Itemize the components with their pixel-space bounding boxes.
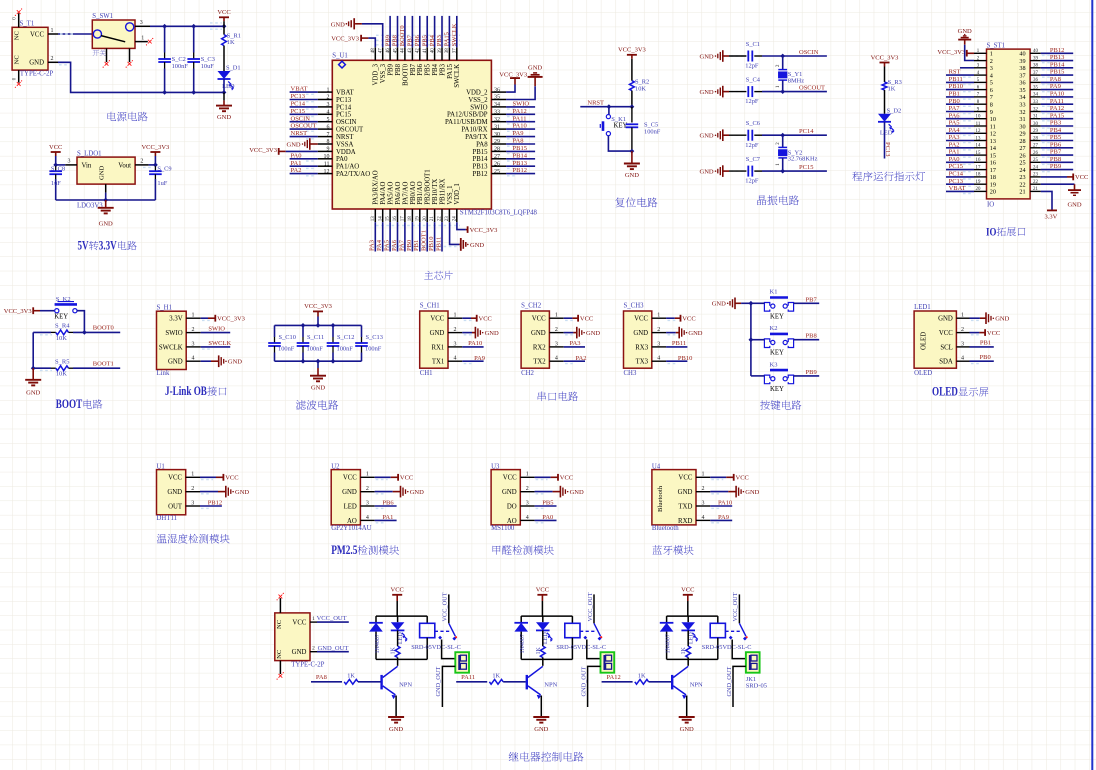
svg-text:PA12: PA12 bbox=[513, 108, 527, 115]
svg-text:PA10: PA10 bbox=[1050, 91, 1064, 98]
svg-text:GND: GND bbox=[26, 389, 40, 396]
svg-text:SWCLK: SWCLK bbox=[454, 64, 461, 88]
svg-text:MS1100: MS1100 bbox=[491, 525, 515, 532]
svg-text:38: 38 bbox=[1019, 65, 1025, 72]
svg-text:TXD: TXD bbox=[678, 503, 692, 510]
svg-text:16: 16 bbox=[990, 160, 996, 167]
svg-text:Bluetooth: Bluetooth bbox=[652, 525, 679, 532]
svg-text:PA6/AO: PA6/AO bbox=[395, 182, 402, 205]
svg-text:S_ST1: S_ST1 bbox=[987, 42, 1006, 49]
svg-text:VCC: VCC bbox=[681, 587, 694, 594]
svg-text:VCC_3V3: VCC_3V3 bbox=[217, 316, 245, 323]
svg-text:VSS_2: VSS_2 bbox=[468, 97, 488, 104]
svg-text:PA1: PA1 bbox=[382, 514, 393, 521]
svg-text:VCC: VCC bbox=[343, 475, 357, 482]
svg-text:PB9: PB9 bbox=[388, 63, 395, 75]
svg-text:29: 29 bbox=[1019, 131, 1025, 138]
svg-text:CH1: CH1 bbox=[420, 370, 433, 377]
svg-text:PC15: PC15 bbox=[799, 164, 813, 171]
svg-text:J-Link OB: J-Link OB bbox=[165, 384, 207, 398]
svg-text:24: 24 bbox=[1033, 165, 1038, 170]
svg-text:VCC: VCC bbox=[168, 475, 182, 482]
svg-text:43: 43 bbox=[408, 48, 413, 54]
svg-text:S_U1: S_U1 bbox=[332, 52, 348, 59]
svg-text:29: 29 bbox=[1033, 129, 1038, 134]
svg-text:PB13: PB13 bbox=[472, 164, 488, 171]
svg-text:PA8: PA8 bbox=[1050, 76, 1061, 83]
svg-text:SWCLK: SWCLK bbox=[159, 344, 183, 351]
svg-text:PC13: PC13 bbox=[884, 142, 891, 156]
svg-text:1: 1 bbox=[366, 472, 369, 478]
svg-text:CH2: CH2 bbox=[521, 370, 534, 377]
svg-text:3.3V: 3.3V bbox=[99, 238, 117, 252]
svg-text:47: 47 bbox=[379, 48, 384, 54]
svg-text:28: 28 bbox=[1033, 136, 1038, 141]
svg-text:GND: GND bbox=[745, 489, 759, 496]
svg-text:PA9: PA9 bbox=[718, 514, 729, 521]
svg-text:GND: GND bbox=[586, 330, 600, 337]
svg-text:1: 1 bbox=[51, 28, 54, 34]
svg-text:RX1: RX1 bbox=[431, 344, 444, 351]
svg-text:PA0: PA0 bbox=[542, 514, 553, 521]
svg-text:11: 11 bbox=[990, 123, 996, 130]
svg-text:GND: GND bbox=[688, 330, 702, 337]
svg-text:18: 18 bbox=[990, 174, 996, 181]
svg-text:12pF: 12pF bbox=[745, 98, 759, 105]
svg-text:PB1: PB1 bbox=[413, 240, 420, 251]
svg-text:PC14: PC14 bbox=[949, 171, 964, 178]
svg-text:PB10: PB10 bbox=[949, 83, 963, 90]
svg-text:RST: RST bbox=[949, 69, 961, 76]
svg-text:PB5: PB5 bbox=[425, 63, 432, 75]
svg-text:100nF: 100nF bbox=[278, 346, 295, 353]
svg-text:PB3: PB3 bbox=[436, 35, 443, 46]
svg-text:1: 1 bbox=[526, 472, 529, 478]
svg-text:2: 2 bbox=[702, 486, 705, 492]
svg-text:K2: K2 bbox=[770, 325, 778, 332]
svg-text:VCC: VCC bbox=[536, 587, 549, 594]
svg-text:U1: U1 bbox=[157, 463, 165, 470]
svg-text:GND: GND bbox=[228, 359, 242, 366]
svg-text:35: 35 bbox=[1019, 87, 1025, 94]
svg-text:PB3: PB3 bbox=[439, 63, 446, 75]
svg-text:KEY: KEY bbox=[770, 313, 784, 320]
svg-text:PB7: PB7 bbox=[1050, 149, 1062, 156]
svg-text:PA8: PA8 bbox=[476, 141, 488, 148]
svg-text:PA12/USB/DP: PA12/USB/DP bbox=[447, 112, 488, 119]
svg-text:3: 3 bbox=[366, 500, 369, 506]
svg-text:VCC: VCC bbox=[225, 475, 238, 482]
svg-text:3: 3 bbox=[454, 341, 457, 347]
svg-text:1: 1 bbox=[702, 472, 705, 478]
svg-text:NC: NC bbox=[14, 31, 21, 41]
svg-text:S_D2: S_D2 bbox=[887, 107, 902, 114]
svg-text:PA2: PA2 bbox=[949, 141, 960, 148]
svg-text:SRD-05VDC-SL-C: SRD-05VDC-SL-C bbox=[411, 644, 461, 651]
svg-text:PB9: PB9 bbox=[806, 369, 817, 376]
svg-text:S_C12: S_C12 bbox=[337, 334, 354, 341]
svg-text:1K: 1K bbox=[347, 673, 355, 680]
svg-text:VCC: VCC bbox=[503, 475, 517, 482]
svg-text:PB6: PB6 bbox=[414, 34, 421, 46]
svg-text:BOOT1: BOOT1 bbox=[93, 360, 114, 367]
svg-text:16: 16 bbox=[976, 158, 981, 163]
svg-text:PA0: PA0 bbox=[949, 156, 960, 163]
svg-text:PA3: PA3 bbox=[949, 134, 960, 141]
svg-text:PA11: PA11 bbox=[461, 674, 475, 681]
svg-text:20: 20 bbox=[423, 216, 428, 222]
svg-text:U3: U3 bbox=[491, 463, 500, 470]
svg-text:PC13: PC13 bbox=[949, 178, 963, 185]
svg-text:37: 37 bbox=[1033, 71, 1038, 76]
svg-text:PC13: PC13 bbox=[291, 93, 305, 100]
svg-text:SRD-05: SRD-05 bbox=[746, 682, 767, 689]
svg-text:VCC_3V3: VCC_3V3 bbox=[937, 49, 965, 56]
svg-text:PB0: PB0 bbox=[949, 98, 960, 105]
svg-text:Bluetooth: Bluetooth bbox=[657, 485, 664, 512]
svg-text:2: 2 bbox=[454, 327, 457, 333]
svg-text:1uF: 1uF bbox=[51, 180, 61, 187]
svg-text:OSCIN: OSCIN bbox=[291, 115, 311, 122]
svg-text:S_C9: S_C9 bbox=[157, 165, 171, 172]
svg-text:SWIO: SWIO bbox=[470, 104, 487, 111]
svg-text:3: 3 bbox=[192, 341, 195, 347]
svg-text:GND: GND bbox=[168, 359, 183, 366]
svg-text:PA5/AO: PA5/AO bbox=[388, 182, 395, 205]
svg-text:VCC_OUT: VCC_OUT bbox=[442, 592, 449, 621]
svg-text:24: 24 bbox=[1019, 167, 1025, 174]
svg-text:2: 2 bbox=[51, 56, 54, 62]
svg-text:SWIO: SWIO bbox=[165, 330, 182, 337]
svg-text:PA5: PA5 bbox=[384, 240, 391, 251]
svg-text:S_C4: S_C4 bbox=[746, 77, 761, 84]
svg-text:NRST: NRST bbox=[587, 100, 604, 107]
svg-text:VBAT: VBAT bbox=[291, 86, 308, 93]
svg-text:VDDA: VDDA bbox=[336, 149, 356, 156]
svg-text:4: 4 bbox=[366, 515, 369, 521]
svg-text:36: 36 bbox=[1033, 78, 1038, 83]
svg-text:LED: LED bbox=[543, 632, 549, 644]
svg-text:PB12: PB12 bbox=[1050, 47, 1064, 54]
svg-text:BOOT1: BOOT1 bbox=[421, 230, 428, 251]
svg-text:13: 13 bbox=[371, 216, 376, 222]
svg-text:PM2.5: PM2.5 bbox=[331, 543, 357, 557]
svg-text:3: 3 bbox=[68, 158, 71, 164]
svg-text:PB8: PB8 bbox=[395, 63, 402, 75]
svg-text:VSS_1: VSS_1 bbox=[447, 186, 454, 205]
svg-text:VCC: VCC bbox=[30, 31, 44, 38]
svg-text:SRD-05VDC-SL-C: SRD-05VDC-SL-C bbox=[556, 644, 606, 651]
svg-text:OSCOUT: OSCOUT bbox=[799, 84, 825, 91]
svg-text:VCC_OUT: VCC_OUT bbox=[732, 592, 739, 621]
svg-text:37: 37 bbox=[1019, 72, 1025, 79]
svg-text:NPN: NPN bbox=[690, 681, 703, 688]
svg-text:21: 21 bbox=[1033, 187, 1038, 192]
svg-text:1K: 1K bbox=[492, 673, 500, 680]
svg-text:40: 40 bbox=[430, 48, 435, 54]
svg-text:100nF: 100nF bbox=[337, 346, 354, 353]
svg-text:34: 34 bbox=[1033, 93, 1038, 98]
svg-text:3: 3 bbox=[961, 341, 964, 347]
svg-text:8MHz: 8MHz bbox=[788, 78, 804, 85]
svg-text:PA9: PA9 bbox=[1050, 83, 1061, 90]
svg-text:VDD_2: VDD_2 bbox=[466, 90, 488, 97]
svg-text:10K: 10K bbox=[56, 335, 68, 342]
svg-text:PA15: PA15 bbox=[447, 63, 454, 78]
svg-text:TYPE-C-2P: TYPE-C-2P bbox=[20, 70, 53, 77]
svg-text:PA6: PA6 bbox=[949, 112, 961, 119]
svg-text:GND: GND bbox=[680, 726, 694, 733]
svg-text:36: 36 bbox=[1019, 80, 1025, 87]
svg-text:GND: GND bbox=[678, 489, 693, 496]
svg-text:LED: LED bbox=[689, 632, 695, 644]
svg-text:NPN: NPN bbox=[544, 681, 557, 688]
svg-text:VDD_1: VDD_1 bbox=[454, 183, 461, 205]
svg-text:32: 32 bbox=[1033, 107, 1038, 112]
svg-text:VCC: VCC bbox=[939, 330, 953, 337]
svg-text:KEY: KEY bbox=[770, 386, 784, 393]
svg-text:GND: GND bbox=[1067, 202, 1081, 209]
svg-text:GND: GND bbox=[470, 242, 484, 249]
svg-text:VCC: VCC bbox=[49, 144, 62, 151]
svg-text:SCL: SCL bbox=[940, 344, 952, 351]
svg-text:TYPE-C-2P: TYPE-C-2P bbox=[291, 662, 324, 669]
svg-text:1N4007: 1N4007 bbox=[666, 634, 672, 653]
svg-text:PB0: PB0 bbox=[406, 240, 413, 251]
svg-text:100nF: 100nF bbox=[365, 346, 382, 353]
svg-text:19: 19 bbox=[990, 182, 996, 189]
svg-text:PA4: PA4 bbox=[376, 239, 383, 251]
svg-text:GND: GND bbox=[700, 89, 714, 96]
svg-text:1N4007: 1N4007 bbox=[375, 634, 381, 653]
svg-text:PB7: PB7 bbox=[407, 34, 414, 46]
svg-text:39: 39 bbox=[1033, 56, 1038, 61]
svg-text:42: 42 bbox=[416, 48, 421, 54]
svg-text:2: 2 bbox=[192, 327, 195, 333]
svg-text:25: 25 bbox=[1019, 160, 1025, 167]
svg-text:PA9: PA9 bbox=[513, 130, 524, 137]
svg-text:32: 32 bbox=[1019, 109, 1025, 116]
svg-text:VBAT: VBAT bbox=[336, 90, 355, 97]
svg-text:OLED: OLED bbox=[914, 370, 932, 377]
svg-text:1: 1 bbox=[454, 313, 457, 319]
svg-text:14: 14 bbox=[976, 144, 981, 149]
svg-text:15: 15 bbox=[976, 151, 981, 156]
svg-text:4: 4 bbox=[990, 72, 993, 79]
svg-text:PB1: PB1 bbox=[949, 91, 960, 98]
svg-text:12pF: 12pF bbox=[745, 142, 759, 149]
svg-text:GND_OUT: GND_OUT bbox=[726, 667, 733, 697]
svg-text:10: 10 bbox=[976, 115, 981, 120]
svg-text:3: 3 bbox=[555, 341, 558, 347]
svg-text:PB8: PB8 bbox=[392, 35, 399, 46]
svg-text:1K: 1K bbox=[638, 673, 646, 680]
svg-text:19: 19 bbox=[976, 180, 981, 185]
svg-text:3: 3 bbox=[191, 500, 194, 506]
svg-text:DHT11: DHT11 bbox=[157, 515, 178, 522]
svg-text:PB3: PB3 bbox=[1050, 120, 1061, 127]
svg-text:S_D1: S_D1 bbox=[226, 65, 241, 72]
svg-text:21: 21 bbox=[1019, 189, 1025, 196]
svg-text:GND: GND bbox=[29, 60, 44, 67]
svg-text:LED: LED bbox=[344, 503, 357, 510]
svg-text:VCC: VCC bbox=[430, 316, 444, 323]
svg-text:OLED: OLED bbox=[932, 385, 958, 399]
svg-text:10: 10 bbox=[990, 116, 996, 123]
svg-text:14: 14 bbox=[990, 145, 996, 152]
svg-text:PB10/TX: PB10/TX bbox=[432, 179, 439, 205]
svg-text:6: 6 bbox=[990, 87, 993, 94]
svg-text:S_R5: S_R5 bbox=[55, 358, 69, 365]
svg-text:40: 40 bbox=[1019, 51, 1025, 58]
svg-text:PB11/RX: PB11/RX bbox=[439, 179, 446, 205]
svg-text:23: 23 bbox=[445, 216, 450, 222]
svg-text:VCC: VCC bbox=[736, 475, 749, 482]
svg-text:VCC: VCC bbox=[1075, 174, 1088, 181]
svg-text:TX1: TX1 bbox=[432, 359, 444, 366]
svg-text:1K: 1K bbox=[536, 647, 542, 655]
svg-text:PC13: PC13 bbox=[336, 97, 352, 104]
svg-text:PA8: PA8 bbox=[513, 138, 524, 145]
svg-text:S_LDO1: S_LDO1 bbox=[77, 151, 102, 158]
svg-text:5V: 5V bbox=[78, 238, 89, 252]
svg-text:PB6: PB6 bbox=[417, 63, 424, 75]
svg-text:VCC: VCC bbox=[682, 316, 695, 323]
svg-text:30: 30 bbox=[1019, 123, 1025, 130]
svg-text:35: 35 bbox=[1033, 85, 1038, 90]
svg-text:VDD_3: VDD_3 bbox=[373, 63, 380, 85]
svg-text:12: 12 bbox=[976, 129, 981, 134]
svg-text:S_CH3: S_CH3 bbox=[624, 303, 645, 310]
svg-text:Link: Link bbox=[157, 370, 170, 377]
svg-text:PB12: PB12 bbox=[472, 171, 488, 178]
svg-text:100nF: 100nF bbox=[307, 346, 324, 353]
svg-text:IO: IO bbox=[986, 224, 996, 238]
svg-text:PA7: PA7 bbox=[949, 105, 961, 112]
svg-text:VCC: VCC bbox=[532, 316, 546, 323]
svg-text:S_C2: S_C2 bbox=[172, 56, 186, 63]
svg-text:VCC_3V3: VCC_3V3 bbox=[470, 227, 498, 234]
svg-text:S_C10: S_C10 bbox=[279, 334, 296, 341]
svg-text:RX2: RX2 bbox=[533, 344, 546, 351]
svg-text:20: 20 bbox=[976, 187, 981, 192]
svg-text:OSCIN: OSCIN bbox=[336, 119, 356, 126]
svg-text:PA11: PA11 bbox=[513, 115, 527, 122]
svg-text:14: 14 bbox=[378, 216, 383, 222]
svg-text:VCC: VCC bbox=[580, 316, 593, 323]
svg-text:PB13: PB13 bbox=[513, 160, 527, 167]
svg-text:PC15: PC15 bbox=[336, 112, 352, 119]
svg-text:PB12: PB12 bbox=[513, 167, 527, 174]
svg-text:23: 23 bbox=[1033, 173, 1038, 178]
svg-text:PB8: PB8 bbox=[806, 333, 817, 340]
svg-text:GND: GND bbox=[287, 141, 301, 148]
svg-text:GND: GND bbox=[217, 114, 231, 121]
svg-text:4: 4 bbox=[526, 515, 529, 521]
svg-text:22: 22 bbox=[438, 216, 443, 222]
svg-text:VCC: VCC bbox=[292, 620, 306, 627]
svg-text:PB4: PB4 bbox=[1050, 127, 1062, 134]
svg-text:PB9: PB9 bbox=[1050, 163, 1061, 170]
svg-text:NC: NC bbox=[276, 649, 283, 659]
svg-text:OSCOUT: OSCOUT bbox=[336, 127, 364, 134]
svg-text:GND: GND bbox=[700, 133, 714, 140]
svg-text:PC14: PC14 bbox=[291, 101, 306, 108]
svg-text:PB6: PB6 bbox=[1050, 141, 1062, 148]
svg-text:1K: 1K bbox=[391, 647, 397, 655]
svg-text:VCC: VCC bbox=[560, 475, 573, 482]
svg-text:VCC: VCC bbox=[217, 9, 230, 16]
svg-text:15: 15 bbox=[386, 216, 391, 222]
svg-text:1: 1 bbox=[657, 313, 660, 319]
svg-text:PB10: PB10 bbox=[428, 237, 435, 251]
svg-text:45: 45 bbox=[393, 48, 398, 54]
svg-text:BOOT: BOOT bbox=[56, 397, 83, 411]
svg-text:GND: GND bbox=[502, 489, 517, 496]
svg-text:PA1: PA1 bbox=[291, 160, 302, 167]
svg-text:GND: GND bbox=[342, 489, 357, 496]
svg-text:PC14: PC14 bbox=[799, 128, 814, 135]
svg-text:17: 17 bbox=[976, 165, 981, 170]
svg-text:VCC_OUT: VCC_OUT bbox=[317, 615, 347, 622]
svg-text:TX2: TX2 bbox=[533, 359, 546, 366]
svg-text:PA15: PA15 bbox=[444, 32, 451, 46]
svg-text:VCC: VCC bbox=[400, 475, 413, 482]
svg-text:22: 22 bbox=[1019, 182, 1025, 189]
svg-text:SDA: SDA bbox=[939, 359, 953, 366]
svg-text:3.3V: 3.3V bbox=[1044, 213, 1057, 220]
svg-text:1: 1 bbox=[555, 313, 558, 319]
svg-text:4: 4 bbox=[961, 356, 964, 362]
svg-text:27: 27 bbox=[1019, 145, 1025, 152]
svg-text:12pF: 12pF bbox=[745, 178, 759, 185]
svg-text:VCC_3V3: VCC_3V3 bbox=[618, 47, 646, 54]
svg-text:PA4: PA4 bbox=[949, 127, 961, 134]
svg-text:20: 20 bbox=[990, 189, 996, 196]
svg-text:AO: AO bbox=[507, 518, 517, 525]
svg-text:PB2/BOOT1: PB2/BOOT1 bbox=[425, 169, 432, 205]
svg-text:PA7/AO: PA7/AO bbox=[402, 182, 409, 205]
svg-text:26: 26 bbox=[1033, 151, 1038, 156]
svg-text:32.768KHz: 32.768KHz bbox=[788, 155, 818, 162]
svg-text:OSCIN: OSCIN bbox=[799, 49, 819, 56]
svg-text:S_T1: S_T1 bbox=[20, 20, 35, 27]
svg-text:PB7: PB7 bbox=[806, 296, 818, 303]
svg-text:GND: GND bbox=[625, 172, 639, 179]
svg-text:GND: GND bbox=[389, 726, 403, 733]
svg-text:S_CH1: S_CH1 bbox=[420, 303, 440, 310]
svg-text:S_C8: S_C8 bbox=[51, 165, 65, 172]
svg-text:GND: GND bbox=[311, 385, 325, 392]
svg-text:3: 3 bbox=[526, 500, 529, 506]
svg-text:1: 1 bbox=[191, 472, 194, 478]
svg-text:GND: GND bbox=[700, 168, 714, 175]
svg-text:PB4: PB4 bbox=[429, 34, 436, 46]
svg-text:GND: GND bbox=[331, 22, 345, 29]
svg-text:PB15: PB15 bbox=[472, 149, 488, 156]
svg-text:S_C6: S_C6 bbox=[746, 120, 760, 127]
svg-text:3.3V: 3.3V bbox=[169, 316, 182, 323]
svg-text:7: 7 bbox=[990, 94, 993, 101]
svg-text:5: 5 bbox=[990, 80, 993, 87]
svg-text:PB5: PB5 bbox=[421, 35, 428, 46]
svg-text:PA10: PA10 bbox=[468, 340, 482, 347]
svg-text:PB9: PB9 bbox=[384, 35, 391, 46]
svg-text:38: 38 bbox=[1033, 64, 1038, 69]
svg-text:PC14: PC14 bbox=[336, 104, 352, 111]
svg-text:GND: GND bbox=[430, 330, 445, 337]
svg-text:VCC: VCC bbox=[987, 330, 1000, 337]
